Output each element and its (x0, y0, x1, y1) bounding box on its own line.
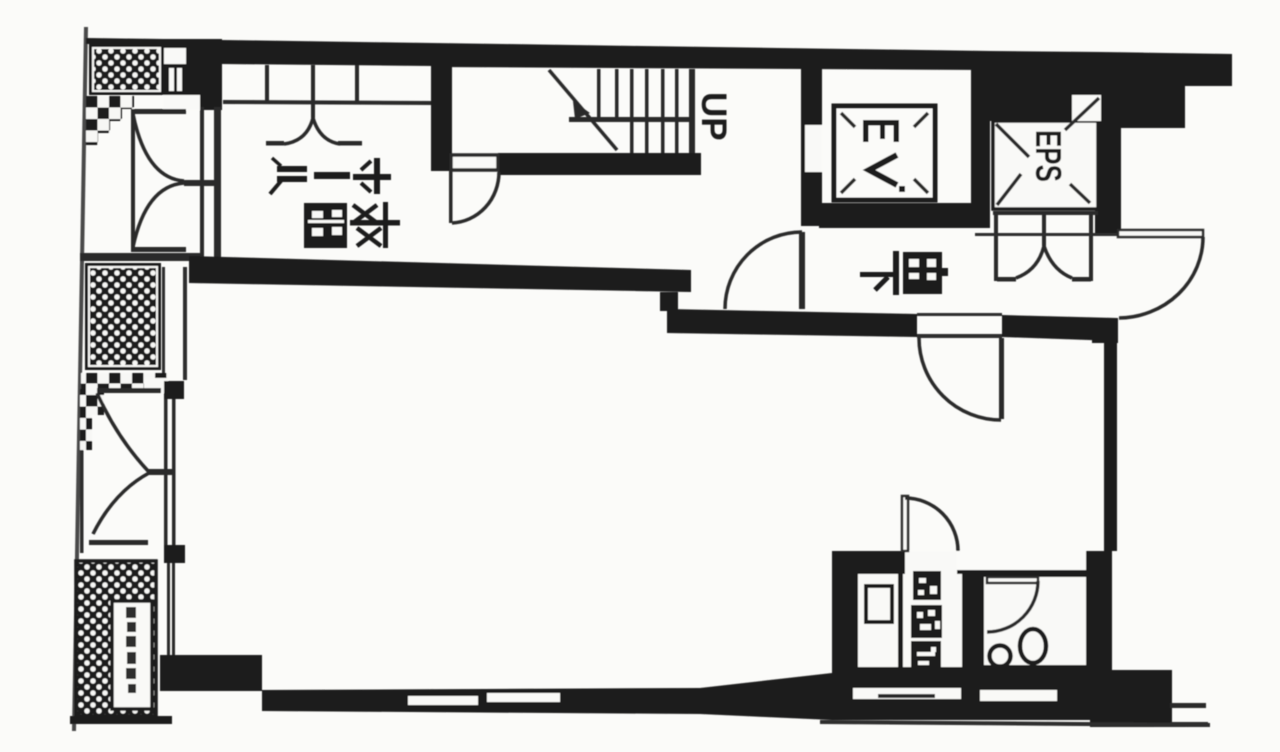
svg-text:EPS: EPS (1028, 130, 1068, 182)
svg-text:UP: UP (694, 92, 733, 141)
